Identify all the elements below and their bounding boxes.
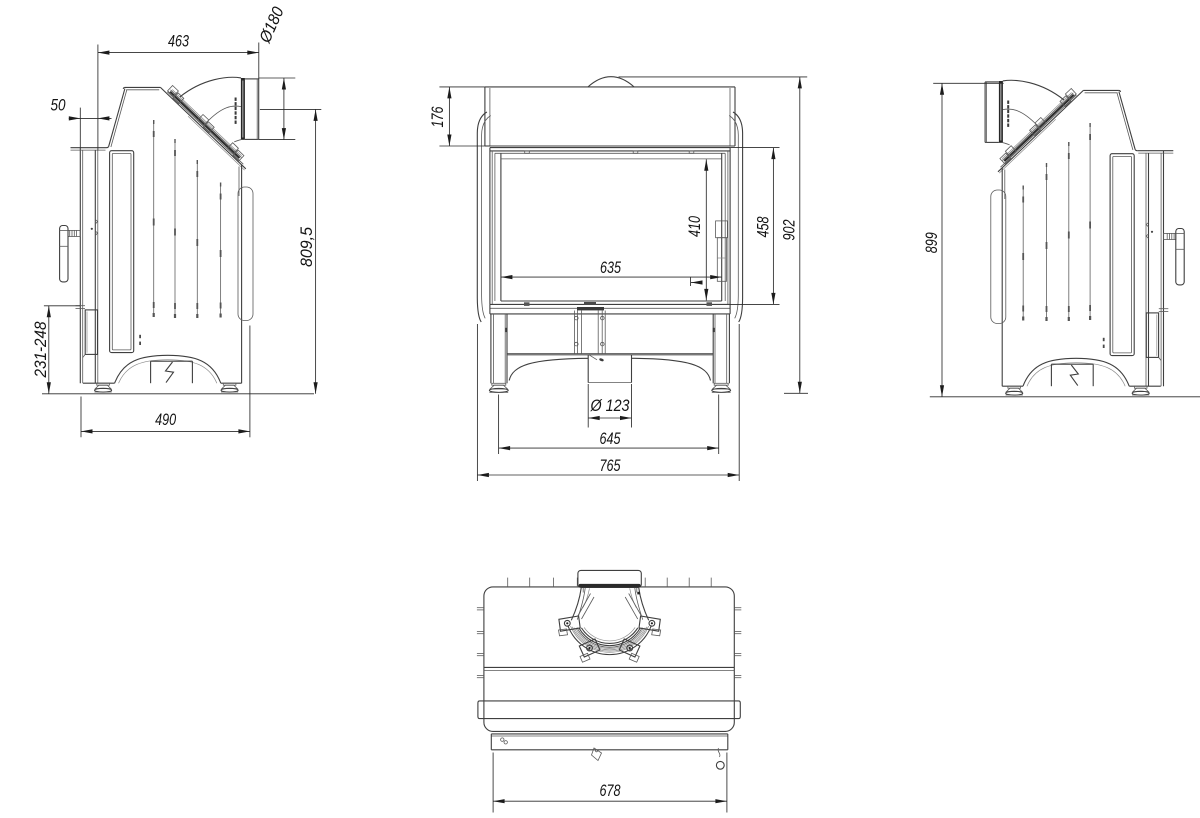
svg-text:765: 765 [600, 457, 622, 475]
svg-text:176: 176 [429, 106, 447, 128]
svg-text:645: 645 [600, 430, 622, 448]
svg-text:50: 50 [51, 97, 67, 115]
svg-text:490: 490 [155, 411, 177, 429]
svg-text:463: 463 [168, 33, 190, 51]
svg-text:Ø 123: Ø 123 [590, 397, 631, 415]
svg-text:902: 902 [780, 220, 798, 241]
svg-text:809,5: 809,5 [298, 226, 316, 267]
svg-text:458: 458 [755, 216, 773, 238]
svg-text:899: 899 [923, 232, 941, 253]
svg-text:635: 635 [600, 259, 622, 277]
svg-text:410: 410 [686, 215, 704, 237]
svg-text:231-248: 231-248 [32, 321, 50, 379]
svg-text:678: 678 [600, 782, 622, 800]
